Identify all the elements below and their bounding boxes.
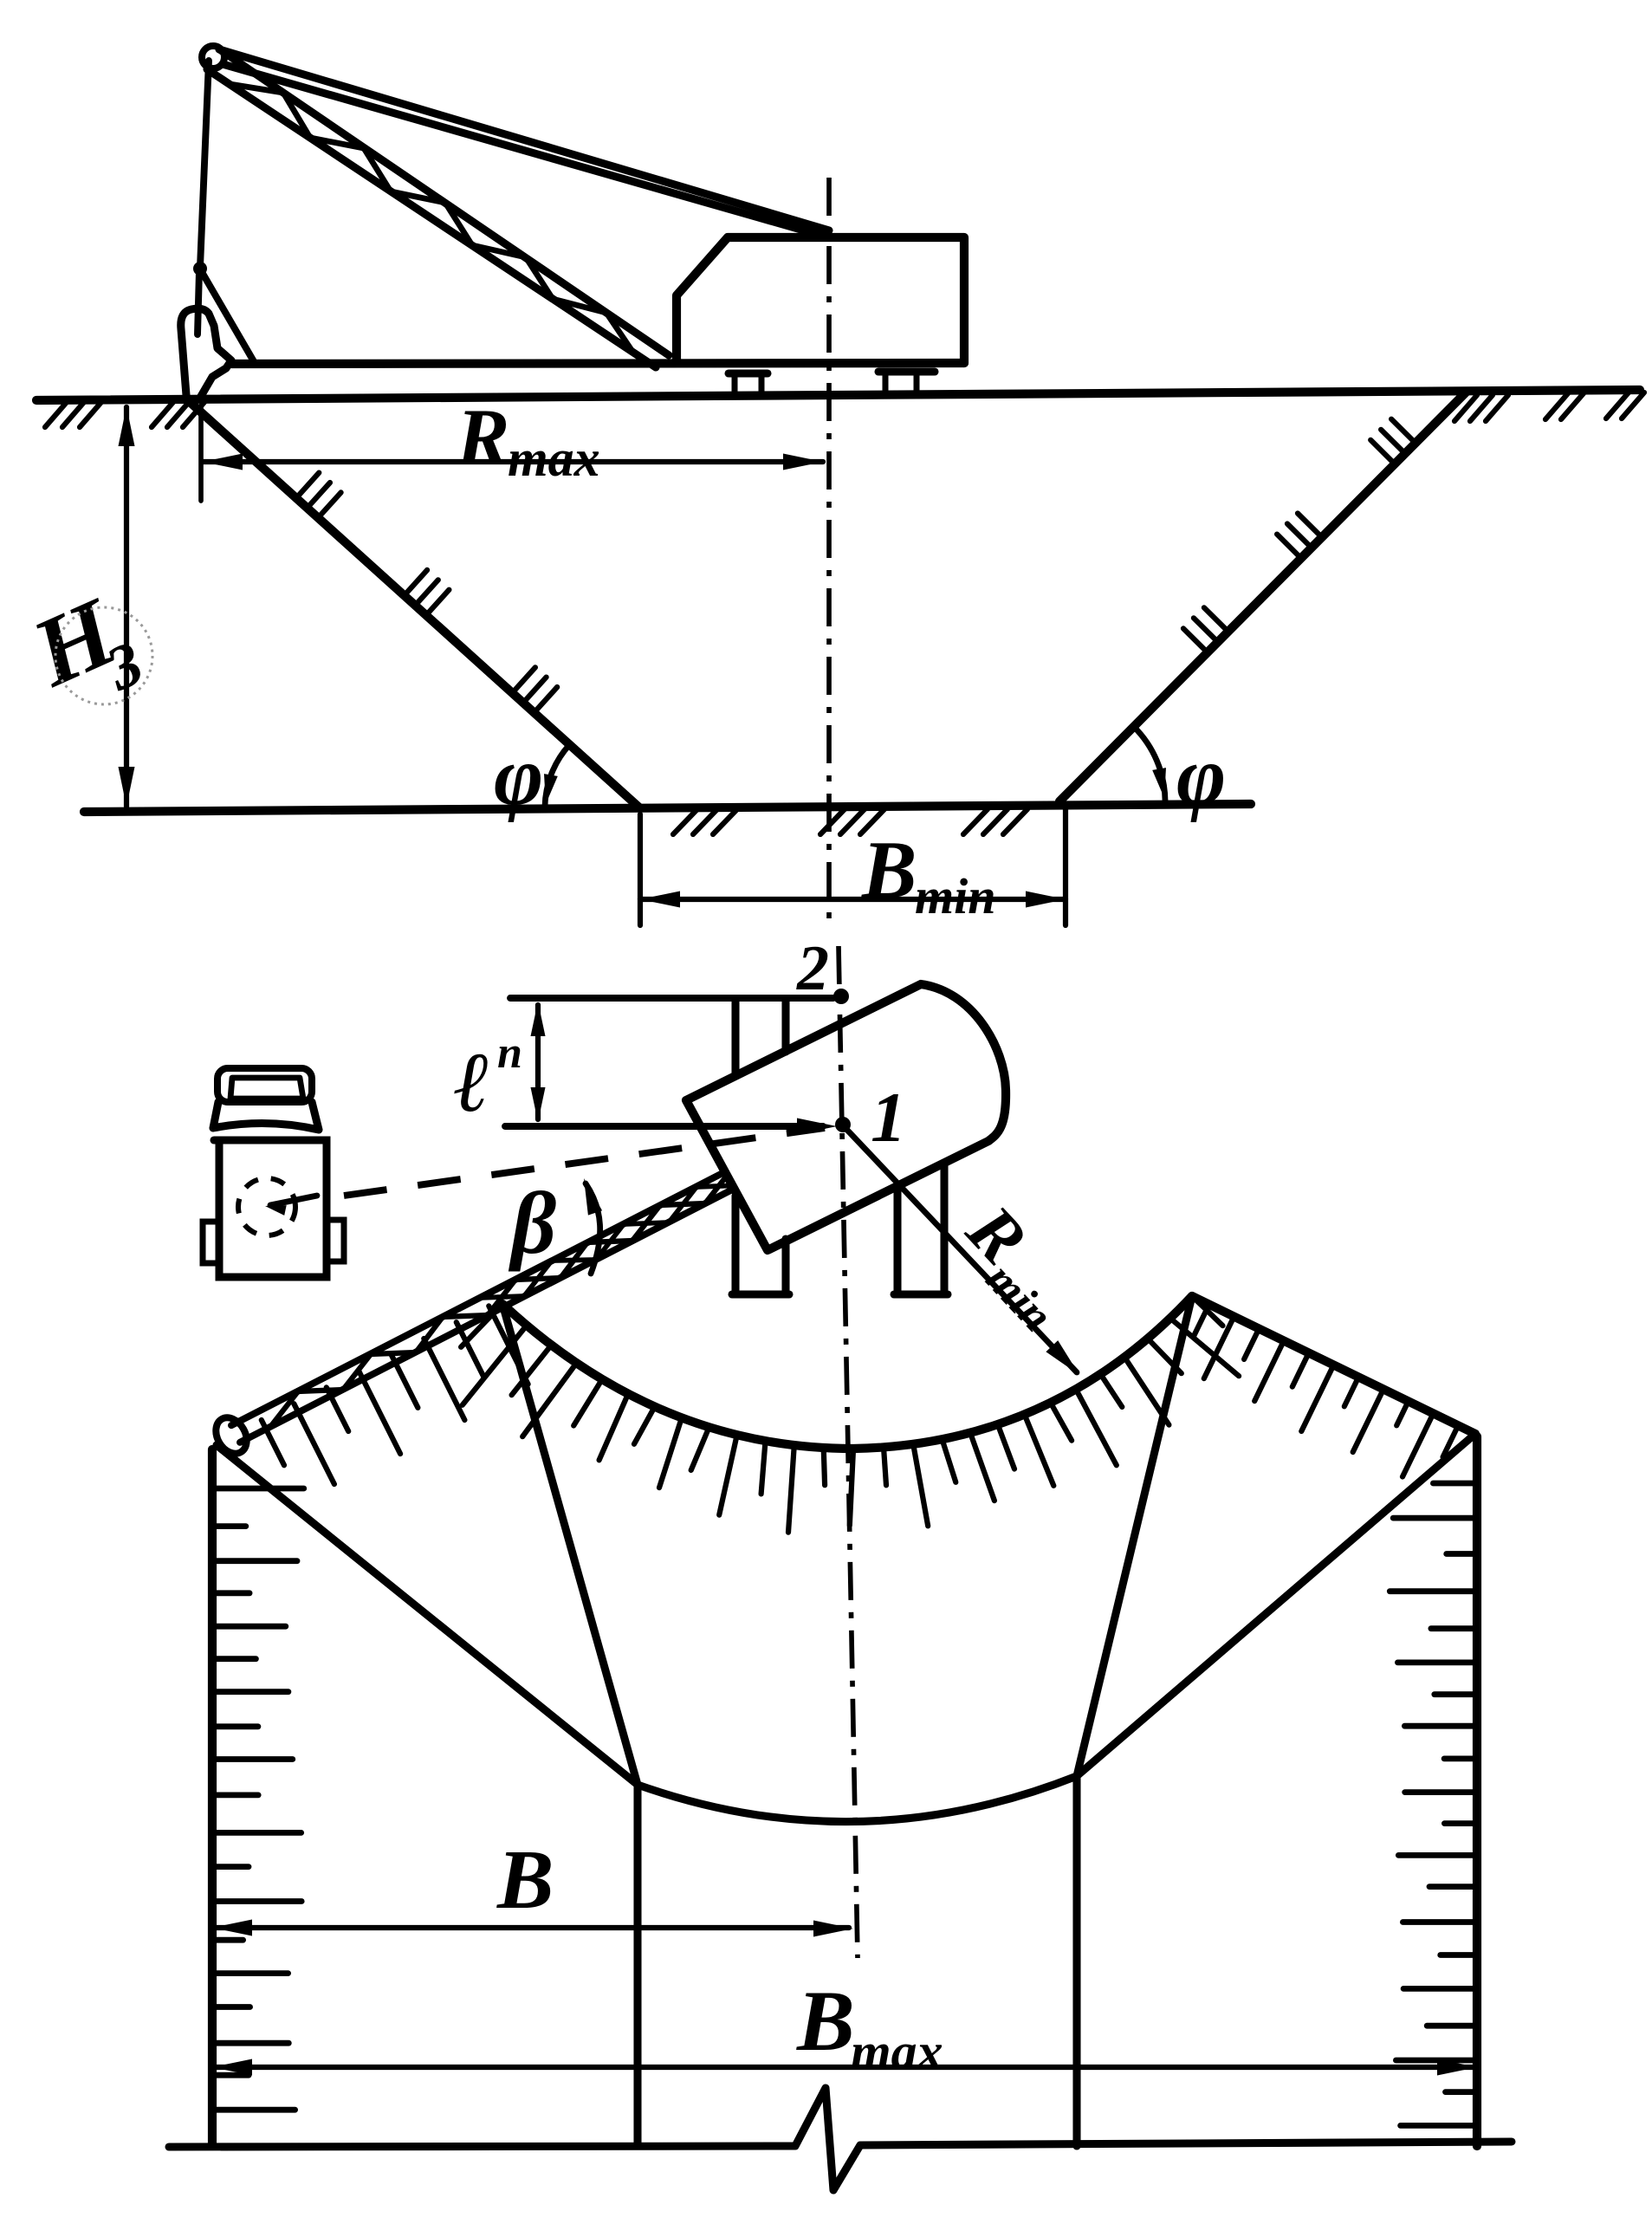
- svg-text:B: B: [861, 824, 917, 916]
- svg-text:ℓ: ℓ: [454, 1036, 490, 1130]
- svg-text:max: max: [851, 2023, 943, 2080]
- svg-text:R: R: [456, 392, 509, 481]
- svg-text:B: B: [796, 1973, 855, 2069]
- svg-text:B: B: [496, 1833, 554, 1927]
- svg-text:β: β: [508, 1175, 556, 1273]
- svg-text:2: 2: [796, 933, 829, 1004]
- svg-text:φ: φ: [494, 729, 543, 823]
- svg-text:1: 1: [871, 1078, 906, 1157]
- svg-text:φ: φ: [1176, 729, 1226, 823]
- svg-text:min: min: [915, 868, 996, 924]
- svg-text:n: n: [497, 1028, 522, 1078]
- svg-text:max: max: [508, 430, 600, 487]
